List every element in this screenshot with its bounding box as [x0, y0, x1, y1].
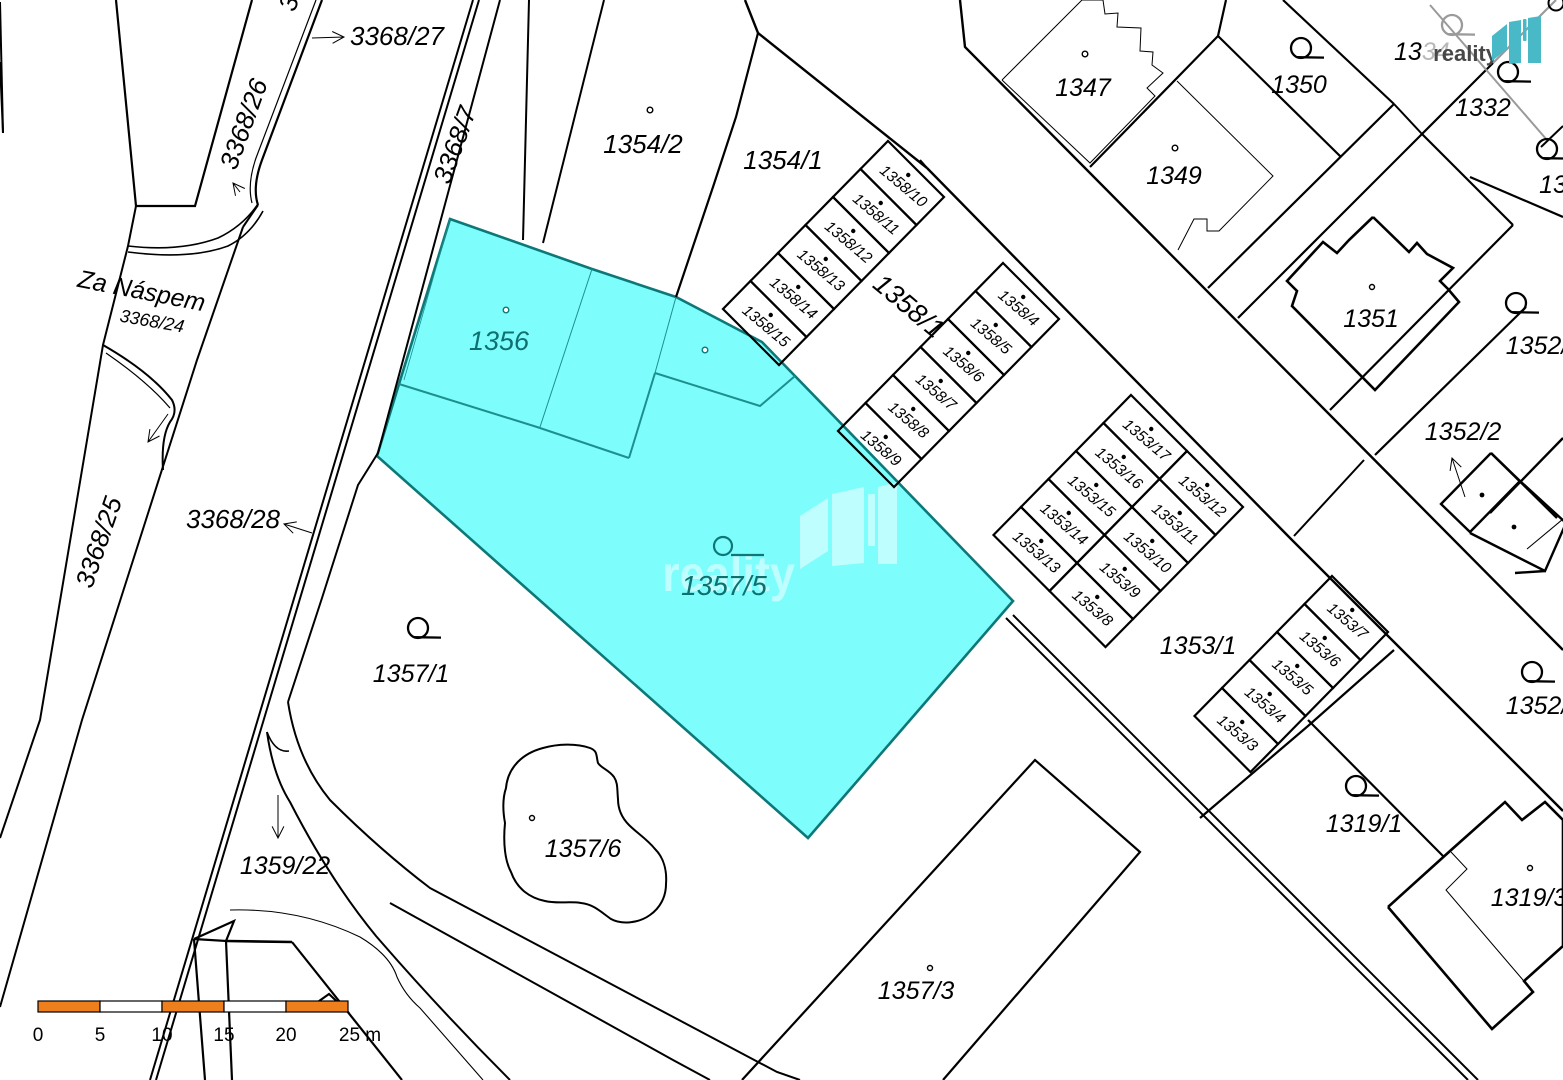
svg-text:1352/2: 1352/2	[1425, 418, 1502, 446]
svg-text:1359/22: 1359/22	[240, 852, 330, 880]
svg-text:1354/1: 1354/1	[743, 145, 823, 175]
svg-text:1356: 1356	[469, 326, 530, 356]
svg-text:3368/28: 3368/28	[186, 504, 281, 534]
svg-text:5: 5	[95, 1025, 106, 1046]
svg-text:25 m: 25 m	[339, 1025, 381, 1046]
svg-text:15: 15	[213, 1025, 234, 1046]
svg-text:1357/1: 1357/1	[373, 660, 449, 688]
svg-text:1332: 1332	[1455, 94, 1511, 122]
svg-text:1347: 1347	[1055, 74, 1112, 102]
svg-text:10: 10	[151, 1025, 172, 1046]
svg-text:1354/2: 1354/2	[603, 129, 683, 159]
svg-text:0: 0	[33, 1025, 44, 1046]
svg-text:1352/: 1352/	[1506, 332, 1563, 360]
svg-text:1357/5: 1357/5	[681, 570, 767, 601]
svg-text:1352/: 1352/	[1506, 692, 1563, 720]
svg-text:3368/27: 3368/27	[350, 21, 446, 51]
svg-text:reality: reality	[1433, 41, 1499, 66]
svg-text:1319/1: 1319/1	[1326, 810, 1402, 838]
svg-text:1357/6: 1357/6	[545, 835, 622, 863]
svg-text:1319/3: 1319/3	[1491, 884, 1563, 912]
svg-text:13: 13	[1539, 171, 1563, 199]
svg-text:20: 20	[275, 1025, 296, 1046]
svg-text:1353/1: 1353/1	[1160, 632, 1236, 660]
svg-text:1357/3: 1357/3	[878, 977, 955, 1005]
svg-text:1350: 1350	[1271, 71, 1327, 99]
svg-text:1351: 1351	[1343, 305, 1399, 333]
svg-text:1349: 1349	[1146, 162, 1202, 190]
